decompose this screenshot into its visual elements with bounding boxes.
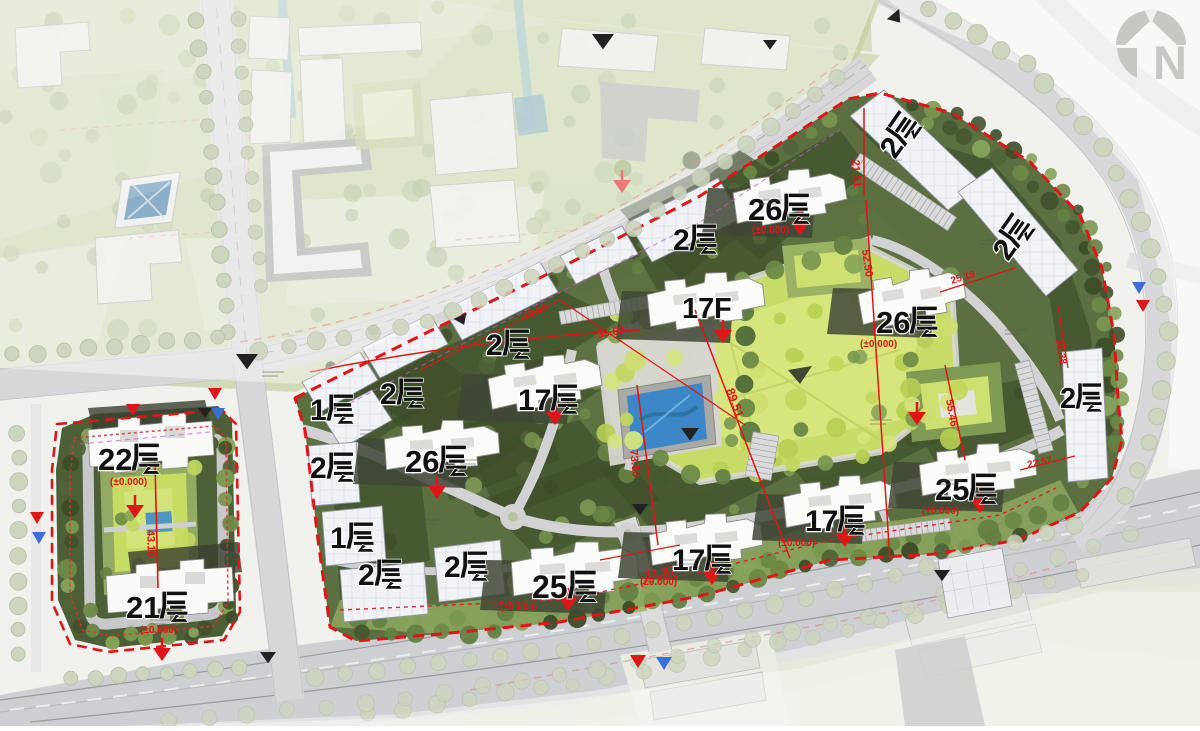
svg-text:26: 26 [876, 305, 910, 340]
svg-text:26: 26 [748, 192, 782, 227]
svg-text:43.10: 43.10 [144, 530, 157, 558]
svg-text:17: 17 [805, 505, 838, 538]
svg-text:(±0.000): (±0.000) [110, 477, 147, 488]
svg-text:2: 2 [310, 452, 327, 485]
svg-text:1: 1 [330, 522, 347, 555]
svg-text:25: 25 [935, 472, 969, 507]
svg-text:2: 2 [358, 559, 375, 592]
svg-text:(±0.000): (±0.000) [922, 506, 959, 517]
svg-text:(±0.000): (±0.000) [752, 225, 789, 236]
svg-text:2: 2 [486, 329, 503, 362]
svg-text:25: 25 [532, 569, 568, 605]
svg-text:2: 2 [673, 224, 690, 257]
svg-text:17: 17 [518, 384, 551, 417]
svg-text:2: 2 [444, 551, 461, 584]
svg-text:N: N [1153, 36, 1187, 89]
svg-text:(±0.000): (±0.000) [500, 602, 537, 613]
svg-text:21.51: 21.51 [849, 159, 863, 187]
svg-text:2: 2 [380, 378, 397, 411]
svg-text:(±0.000): (±0.000) [140, 625, 177, 636]
svg-text:(±0.000): (±0.000) [860, 339, 897, 350]
svg-text:26: 26 [405, 444, 439, 479]
svg-text:2: 2 [1060, 383, 1076, 415]
svg-text:22: 22 [98, 442, 132, 477]
svg-text:(±0.000): (±0.000) [640, 577, 677, 588]
svg-text:1: 1 [310, 394, 327, 427]
svg-text:17: 17 [672, 544, 705, 577]
